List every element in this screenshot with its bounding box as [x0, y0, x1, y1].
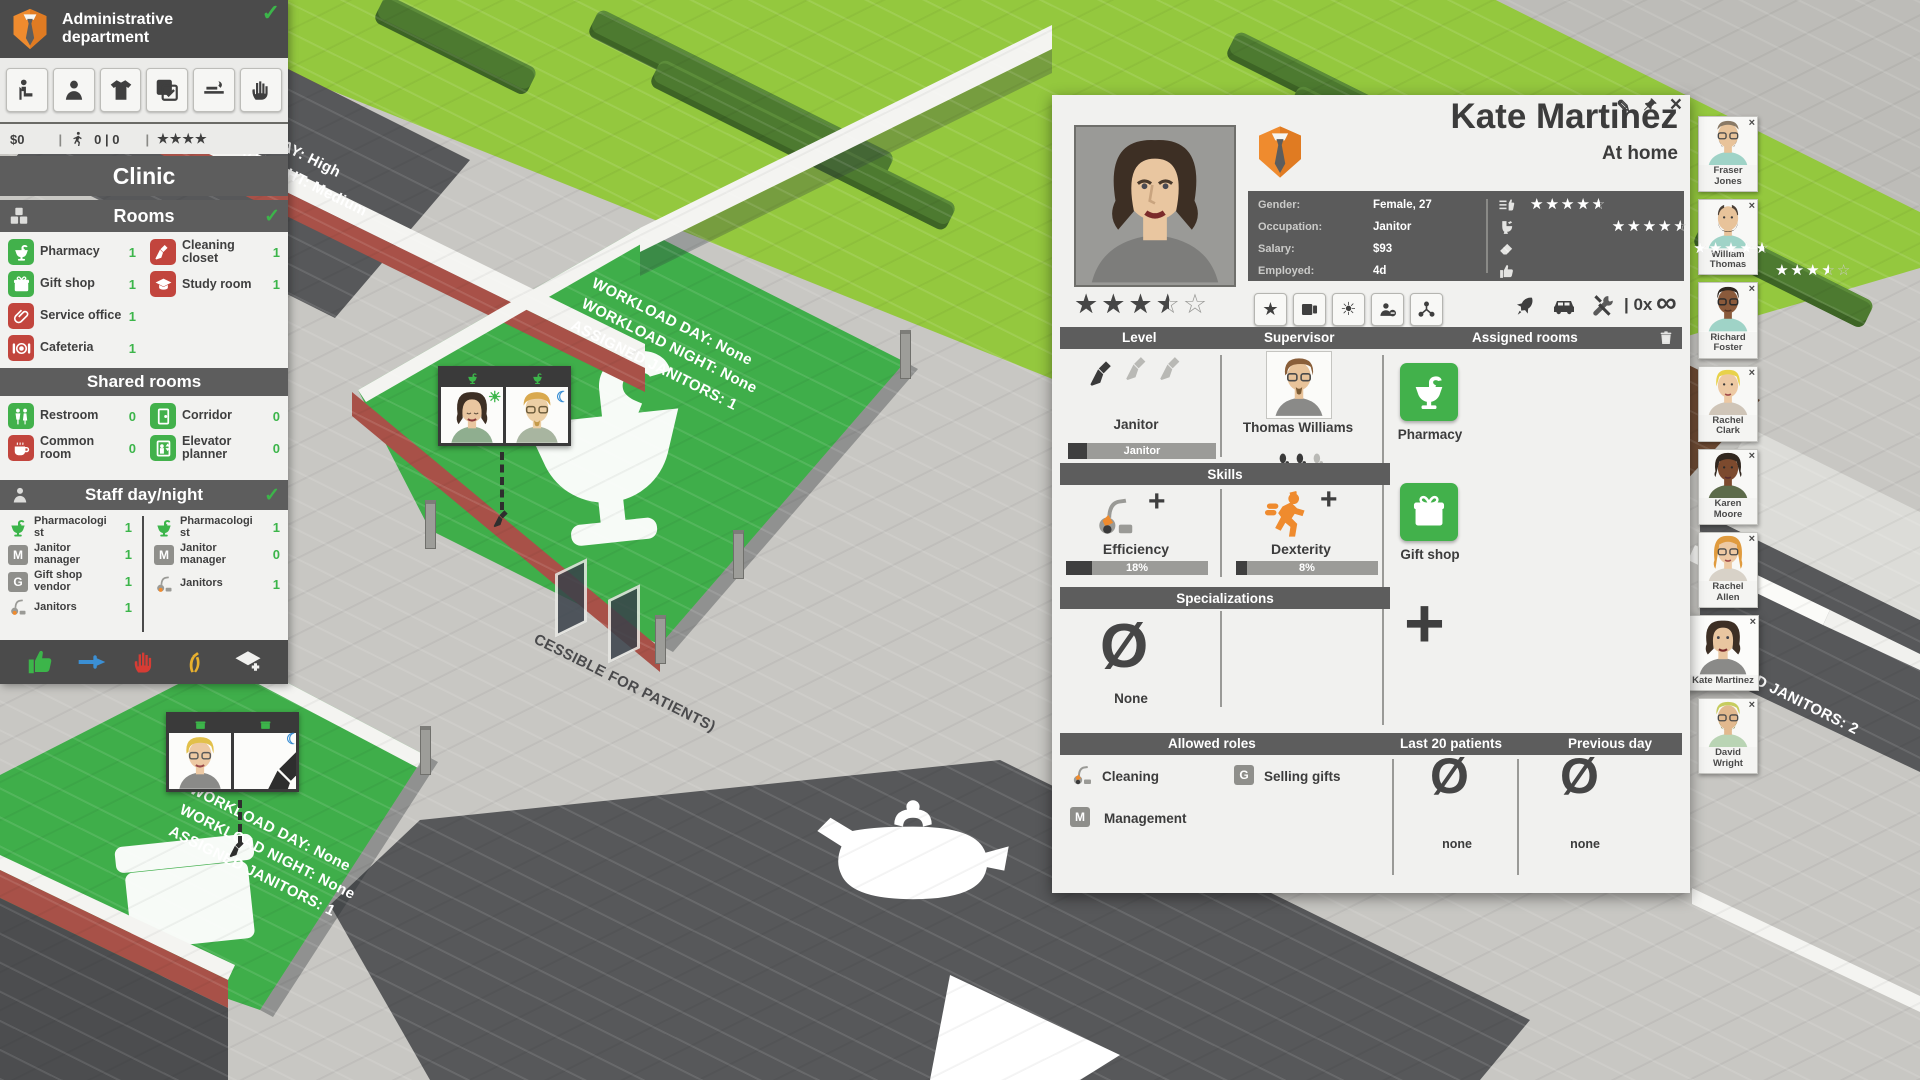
shared-rooms-list: Restroom 0 Common room 0 Corridor 0 Ele: [0, 396, 288, 480]
overall-stars: ☆☆☆☆☆★★★★★: [1074, 291, 1210, 318]
staff-divider: [142, 516, 144, 632]
staff-item-janitor-manager-night[interactable]: M Janitor manager 0: [150, 541, 284, 568]
level-broom-icon: [1158, 353, 1188, 385]
rating-satisfaction-icon: [1498, 263, 1515, 280]
specialization-none-label: None: [1066, 691, 1196, 706]
close-icon[interactable]: ×: [1749, 117, 1755, 129]
occupation-value: Janitor: [1373, 221, 1411, 233]
portrait-name: Karen Moore: [1699, 498, 1757, 522]
staff-portrait: [1074, 125, 1236, 287]
portrait-card-rachel-allen[interactable]: × Rachel Allen: [1698, 532, 1758, 608]
vacuum-icon: [154, 574, 174, 594]
rating-queue-icon: [1498, 197, 1515, 214]
staff-list: Pharmacologist 1 M Janitor manager 1 G G…: [0, 510, 288, 640]
elevator-icon: [150, 435, 176, 461]
column-divider: [1392, 759, 1394, 875]
supervisor-name: Thomas Williams: [1242, 421, 1354, 436]
break-room-button[interactable]: [193, 68, 235, 112]
gender-value: Female, 27: [1373, 199, 1432, 211]
approve-button[interactable]: [21, 645, 59, 679]
portrait-card-rachel-clark[interactable]: × Rachel Clark: [1698, 366, 1758, 442]
rating-stars-equipment: ☆☆☆☆☆★★★★★: [1693, 241, 1770, 256]
dexterity-label: Dexterity: [1220, 541, 1382, 557]
portrait-name: Fraser Jones: [1699, 165, 1757, 189]
daylight-button[interactable]: ☀: [1332, 293, 1365, 326]
room-item-pharmacy[interactable]: Pharmacy 1: [4, 236, 140, 268]
room-item-restroom[interactable]: Restroom 0: [4, 400, 140, 432]
edit-icon[interactable]: ✎: [1616, 97, 1630, 117]
portrait-name: Richard Foster: [1699, 332, 1757, 356]
dexterity-plus-button[interactable]: +: [1320, 483, 1338, 517]
trash-icon[interactable]: [1658, 330, 1674, 346]
staff-item-pharmacologist-night[interactable]: Pharmacologist 1: [150, 514, 284, 541]
relations-button[interactable]: [1410, 293, 1443, 326]
portrait-card-richard-foster[interactable]: × Richard Foster: [1698, 282, 1758, 358]
rating-toilet-icon: [1498, 219, 1515, 236]
giftshop-icon: [194, 718, 207, 731]
shift-marker-giftshop[interactable]: [166, 712, 299, 792]
dexterity-bar: 8%: [1236, 561, 1378, 575]
staff-check-icon: ✓: [264, 484, 280, 507]
close-icon[interactable]: ×: [1749, 450, 1755, 462]
night-shift-moon-icon: ☾: [556, 388, 569, 406]
room-item-common-room[interactable]: Common room 0: [4, 432, 140, 464]
waiting-policy-button[interactable]: [6, 68, 48, 112]
luck-button[interactable]: [177, 645, 215, 679]
portrait-card-david-wright[interactable]: × David Wright: [1698, 698, 1758, 774]
uniform-button[interactable]: [100, 68, 142, 112]
manager-badge-icon: M: [8, 545, 28, 565]
pharmacy-icon: [154, 518, 174, 538]
day-shift-cell[interactable]: [169, 715, 231, 789]
pharmacy-icon: [531, 372, 544, 385]
door-icon: [150, 403, 176, 429]
favorite-button[interactable]: ★: [1254, 293, 1287, 326]
wall-post: [733, 530, 744, 579]
department-stats: $0 | 0 | 0 | ★★★★: [0, 122, 288, 154]
rocket-icon: [1507, 288, 1544, 325]
stop-button[interactable]: [125, 645, 163, 679]
staff-item-pharmacologist-day[interactable]: Pharmacologist 1: [4, 514, 136, 541]
kettle-floor-icon: [808, 798, 1018, 908]
shared-rooms-header: Shared rooms: [0, 368, 288, 396]
person-icon: [10, 485, 30, 505]
assigned-room-pharmacy[interactable]: [1400, 363, 1458, 421]
level-header: Level: [1122, 330, 1157, 345]
broom-icon: [150, 239, 176, 265]
vacuum-icon: [8, 597, 28, 617]
pharmacy-door: [555, 558, 587, 638]
level-broom-icon: [1088, 357, 1120, 391]
room-item-cleaning-closet[interactable]: Cleaning closet 1: [146, 236, 284, 268]
room-item-study-room[interactable]: Study room 1: [146, 268, 284, 300]
staff-item-janitor-manager-day[interactable]: M Janitor manager 1: [4, 541, 136, 568]
staff-item-janitors-night[interactable]: Janitors 1: [150, 572, 284, 596]
mask-icon: ∞: [1656, 287, 1677, 320]
patients-count: 0 | 0: [94, 132, 119, 147]
room-item-service-office[interactable]: Service office 1: [4, 300, 140, 332]
staff-item-janitors-day[interactable]: Janitors 1: [4, 595, 136, 619]
column-divider: [1220, 355, 1222, 457]
portrait-card-fraser-jones[interactable]: × Fraser Jones: [1698, 116, 1758, 192]
room-item-giftshop[interactable]: Gift shop 1: [4, 268, 140, 300]
department-icon: [1252, 121, 1308, 183]
close-icon[interactable]: ×: [1750, 616, 1756, 628]
restroom-icon: [8, 403, 34, 429]
day-shift-sun-icon: ☀: [488, 388, 501, 406]
close-icon[interactable]: ×: [1749, 699, 1755, 711]
point-button[interactable]: [73, 645, 111, 679]
cubes-icon: [8, 205, 30, 227]
rating-equipment-icon: [1498, 241, 1515, 258]
room-item-elevator-planner[interactable]: Elevator planner 0: [146, 432, 284, 464]
skills-header: Skills: [1060, 463, 1390, 485]
column-divider: [1517, 759, 1519, 875]
department-panel: Administrative department ✓ $0 | 0 | 0 |…: [0, 0, 288, 684]
role-cleaning: Cleaning: [1102, 769, 1192, 784]
wall-post: [420, 726, 431, 775]
portrait-name: Rachel Clark: [1699, 415, 1757, 439]
close-icon[interactable]: ×: [1749, 533, 1755, 545]
dismiss-button[interactable]: [229, 645, 267, 679]
avatar: [169, 733, 231, 789]
close-icon[interactable]: ×: [1749, 200, 1755, 212]
staff-status: At home: [1602, 143, 1678, 165]
close-icon[interactable]: ×: [1749, 283, 1755, 295]
dexterity-icon: [1264, 491, 1310, 537]
assigned-room-label: Pharmacy: [1370, 427, 1490, 442]
hand-policy-button[interactable]: [240, 68, 282, 112]
previous-day-none-icon: Ø: [1560, 747, 1599, 805]
column-divider: [1382, 355, 1384, 725]
occupation-label: Occupation:: [1258, 221, 1322, 233]
efficiency-bar: 18%: [1066, 561, 1208, 575]
supervisor-header: Supervisor: [1264, 330, 1335, 345]
supervisor-portrait[interactable]: [1266, 351, 1332, 419]
janitor-spot-icon: [228, 838, 250, 860]
wall-post: [425, 500, 436, 549]
pin-icon[interactable]: [1643, 97, 1658, 112]
close-icon[interactable]: ×: [1670, 97, 1682, 117]
walking-icon: [70, 131, 86, 147]
graduation-cap-icon: [150, 271, 176, 297]
night-shift-cell[interactable]: [234, 715, 296, 789]
room-item-corridor[interactable]: Corridor 0: [146, 400, 284, 432]
department-title: Administrative department: [62, 11, 212, 47]
staff-item-giftshop-vendor-day[interactable]: G Gift shop vendor 1: [4, 568, 136, 595]
staff-portrait-strip: × Fraser Jones ×: [1698, 116, 1762, 781]
staff-policy-button[interactable]: [53, 68, 95, 112]
pharmacy-door: [608, 584, 640, 664]
staff-name: Kate Martinez: [1258, 97, 1678, 137]
wall-post: [655, 615, 666, 664]
employed-label: Employed:: [1258, 265, 1314, 277]
wall-post: [900, 330, 911, 379]
efficiency-icon: [1092, 493, 1138, 539]
manager-badge-icon: M: [154, 545, 174, 565]
usage-counter: | 0x: [1624, 295, 1652, 315]
allowed-roles-header: Allowed roles: [1168, 736, 1256, 751]
column-divider: [1220, 611, 1222, 707]
portrait-card-william-thomas[interactable]: × William Thomas: [1698, 199, 1758, 275]
assignment-line: [500, 452, 504, 510]
efficiency-plus-button[interactable]: +: [1148, 485, 1166, 519]
salary-value: $93: [1373, 243, 1392, 255]
coffee-icon: [8, 435, 34, 461]
rooms-header: Rooms ✓: [0, 200, 288, 232]
add-assigned-room-button[interactable]: +: [1404, 595, 1445, 651]
portrait-name: Kate Martinez: [1688, 675, 1758, 688]
rating-stars-satisfaction: ☆☆☆☆☆★★★★★: [1775, 263, 1852, 278]
gifts-badge-icon: G: [1234, 765, 1254, 785]
paperclip-icon: [8, 303, 34, 329]
staff-header: Staff day/night ✓: [0, 480, 288, 510]
last20-none-icon: Ø: [1430, 747, 1469, 805]
giftshop-icon: [259, 718, 272, 731]
cleaning-role-icon: [1070, 763, 1094, 787]
role-management: Management: [1104, 811, 1214, 826]
management-badge-icon: M: [1070, 807, 1090, 827]
salary-label: Salary:: [1258, 243, 1295, 255]
gift-icon: [8, 271, 34, 297]
department-icon: [8, 7, 52, 51]
level-progress-bar: Janitor: [1068, 443, 1216, 459]
portrait-name: Rachel Allen: [1699, 581, 1757, 605]
level-broom-icon: [1124, 353, 1154, 385]
money-value: $0: [10, 132, 24, 147]
clinic-title: Clinic: [0, 156, 288, 196]
info-divider: [1486, 199, 1488, 273]
assigned-room-label: Gift shop: [1370, 547, 1490, 562]
vendor-badge-icon: G: [8, 572, 28, 592]
tools-icon: [1590, 293, 1616, 319]
columns-header: Level Supervisor Assigned rooms: [1060, 327, 1682, 349]
portrait-name: David Wright: [1699, 747, 1757, 771]
efficiency-label: Efficiency: [1052, 541, 1220, 557]
level-title: Janitor: [1052, 417, 1220, 432]
close-icon[interactable]: ×: [1749, 367, 1755, 379]
janitor-spot-icon: [492, 508, 514, 530]
tasks-button[interactable]: [146, 68, 188, 112]
room-item-cafeteria[interactable]: Cafeteria 1: [4, 332, 140, 364]
meal-icon: [8, 335, 34, 361]
pharmacy-icon: [8, 518, 28, 538]
specialization-none-icon: Ø: [1100, 611, 1148, 682]
role-selling-gifts: Selling gifts: [1264, 769, 1374, 784]
staff-info-box: Gender: Female, 27 Occupation: Janitor S…: [1248, 191, 1684, 281]
assigned-room-giftshop[interactable]: [1400, 483, 1458, 541]
rating-stars-queue: ☆☆☆☆☆★★★★★: [1530, 197, 1607, 212]
department-header: Administrative department ✓: [0, 0, 288, 58]
last20-none-label: none: [1402, 837, 1512, 851]
pharmacy-icon: [466, 372, 479, 385]
department-toolbar: [0, 58, 288, 122]
staff-detail-panel: ✎ × Kate Martinez At home: [1052, 95, 1690, 893]
rooms-check-icon: ✓: [264, 205, 280, 228]
policy-actions: [0, 640, 288, 684]
previous-day-none-label: none: [1530, 837, 1640, 851]
assigned-rooms-header: Assigned rooms: [1472, 330, 1578, 345]
specializations-header: Specializations: [1060, 587, 1390, 609]
portrait-card-karen-moore[interactable]: × Karen Moore: [1698, 449, 1758, 525]
column-divider: [1220, 489, 1222, 577]
pharmacy-icon: [8, 239, 34, 265]
id-card-button[interactable]: [1293, 293, 1326, 326]
divider: |: [145, 132, 149, 147]
department-stars: ★★★★: [157, 131, 208, 147]
gender-label: Gender:: [1258, 199, 1300, 211]
unassign-person-button[interactable]: [1371, 293, 1404, 326]
rating-stars-toilet: ☆☆☆☆☆★★★★★: [1612, 219, 1689, 234]
portrait-card-kate-martinez[interactable]: × Kate Martinez: [1687, 615, 1759, 691]
employed-value: 4d: [1373, 265, 1386, 277]
shift-marker-pharmacy[interactable]: [438, 366, 571, 446]
car-icon: [1550, 295, 1578, 319]
rooms-list: Pharmacy 1 Gift shop 1 Service office 1 …: [0, 232, 288, 368]
avatar: [1688, 616, 1758, 674]
game-stage: WORKLOAD DAY: High WORKLOAD NIGHT: Mediu…: [0, 0, 1920, 1080]
department-check-icon: ✓: [262, 0, 280, 26]
divider: |: [58, 132, 62, 147]
night-shift-moon-icon: ☾: [286, 730, 299, 748]
